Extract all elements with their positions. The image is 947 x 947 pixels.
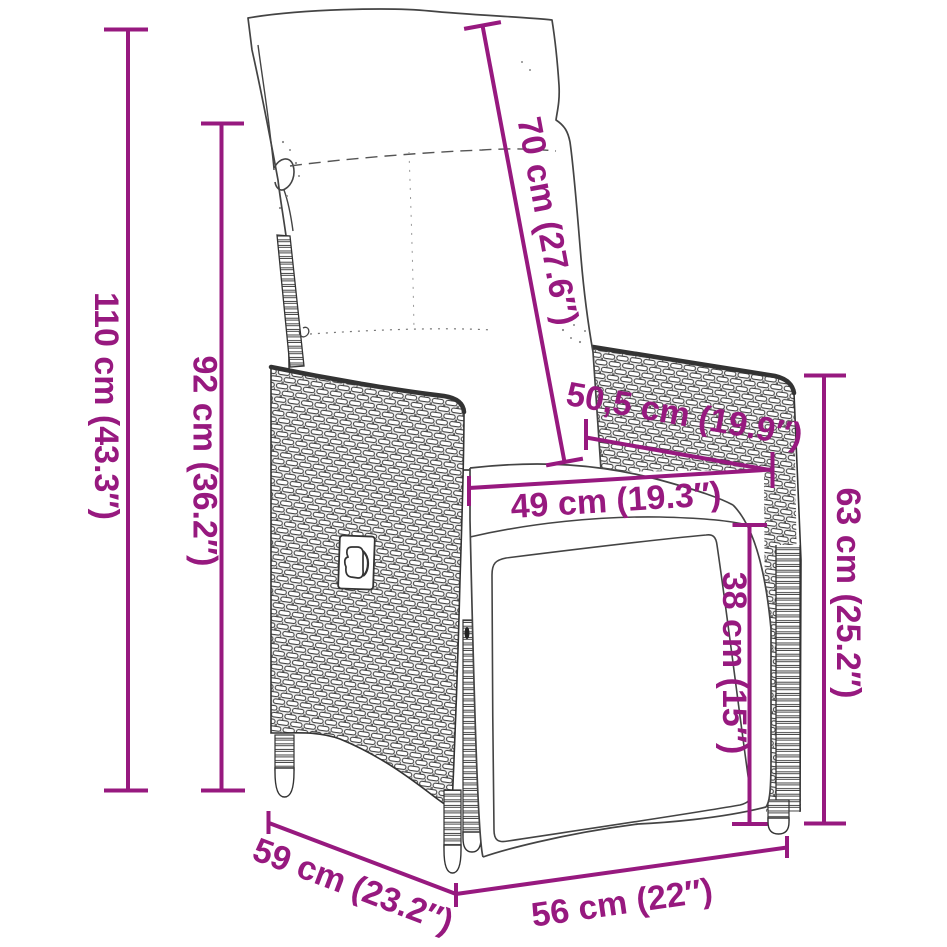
svg-text:92 cm (36.2″): 92 cm (36.2″) bbox=[186, 356, 224, 567]
svg-text:63 cm (25.2″): 63 cm (25.2″) bbox=[829, 488, 867, 699]
svg-text:110 cm (43.3″): 110 cm (43.3″) bbox=[87, 292, 125, 520]
svg-text:38 cm (15″): 38 cm (15″) bbox=[715, 572, 753, 755]
